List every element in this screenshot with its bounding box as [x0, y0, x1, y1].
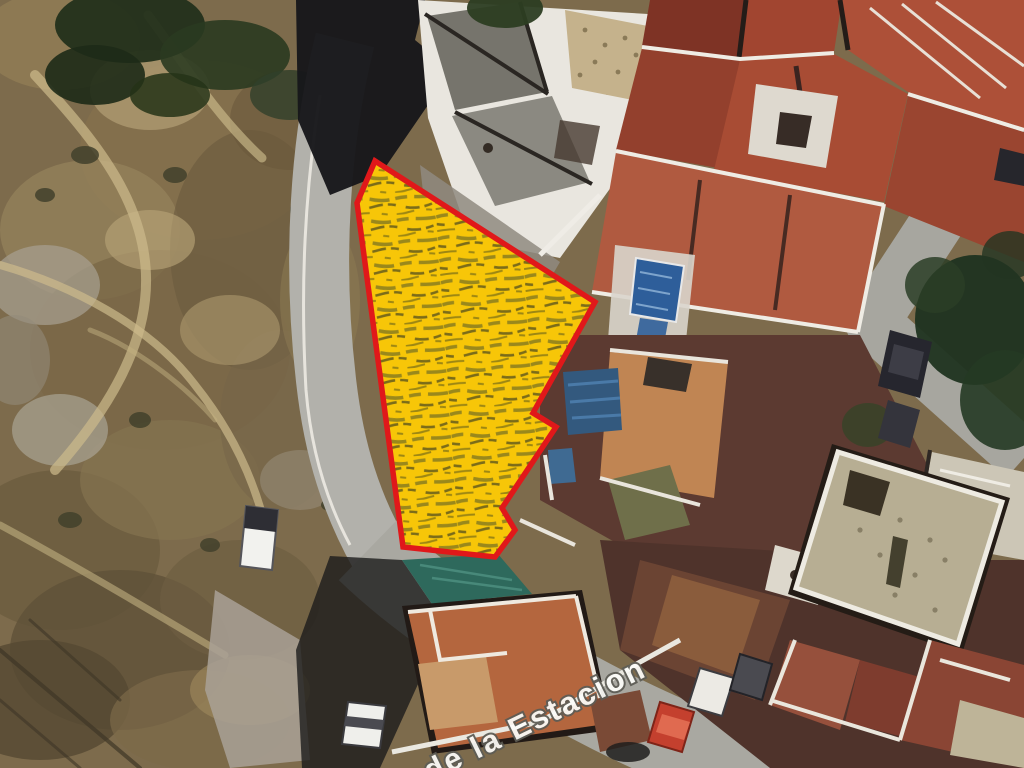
solar-panel-icon	[630, 258, 684, 322]
satellite-map-image: de la Estacion	[0, 0, 1024, 768]
inner-courtyard	[418, 656, 498, 730]
map-canvas: de la Estacion	[0, 0, 1024, 768]
white-van-south	[342, 702, 386, 748]
blue-tarp-small	[548, 448, 576, 484]
white-car-west-road	[240, 506, 278, 570]
solar-panel-roof	[608, 245, 695, 350]
